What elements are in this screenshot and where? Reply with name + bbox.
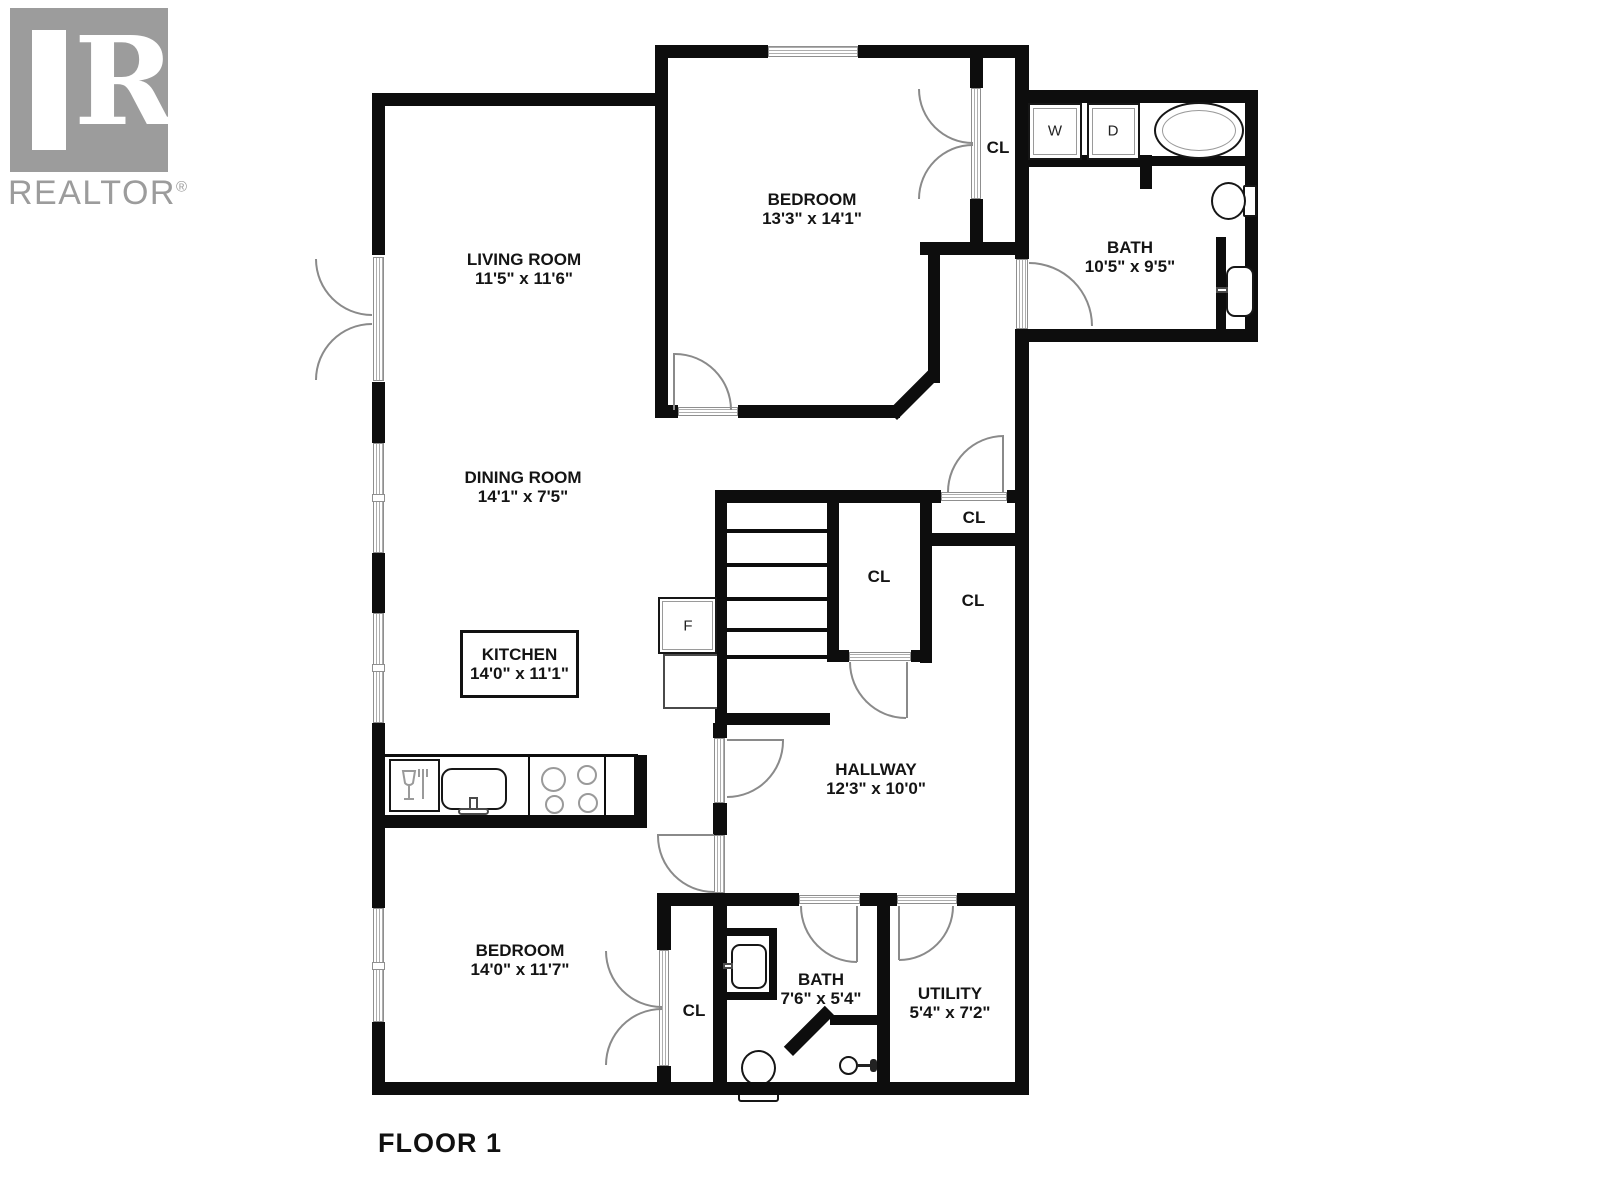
room-dims: 5'4" x 7'2" <box>910 1003 991 1022</box>
door-opening <box>714 738 725 803</box>
wall <box>655 45 768 58</box>
wall <box>372 1082 1029 1095</box>
door-arc <box>727 741 784 798</box>
fridge-label: F <box>683 618 692 635</box>
stair-tread <box>727 628 827 632</box>
window <box>373 613 384 667</box>
room-label-utility: UTILITY 5'4" x 7'2" <box>910 984 991 1022</box>
shower-head <box>839 1056 858 1075</box>
room-label-living-room: LIVING ROOM 11'5" x 11'6" <box>467 250 581 288</box>
window <box>373 669 384 723</box>
wall <box>920 533 1029 546</box>
wall <box>769 928 777 1000</box>
wall <box>372 382 385 443</box>
room-dims: 12'3" x 10'0" <box>826 779 926 798</box>
stair-tread <box>727 655 827 659</box>
wall <box>920 242 1029 255</box>
room-name: LIVING ROOM <box>467 250 581 269</box>
toilet-bowl <box>741 1050 776 1086</box>
washer-label: W <box>1048 123 1062 140</box>
wall <box>713 905 727 1095</box>
wall <box>634 755 647 828</box>
room-name: BATH <box>781 970 862 989</box>
closet-label: CL <box>987 138 1010 158</box>
wall <box>1140 155 1152 189</box>
wall <box>920 490 941 503</box>
door-arc <box>657 836 714 893</box>
wall <box>372 553 385 613</box>
room-name: BEDROOM <box>471 941 570 960</box>
window-sill <box>372 664 385 672</box>
wall <box>655 45 668 418</box>
door-opening <box>941 492 1007 501</box>
door-arc <box>918 144 973 199</box>
room-dims: 7'6" x 5'4" <box>781 989 862 1008</box>
room-dims: 11'5" x 11'6" <box>467 269 581 288</box>
door-opening <box>849 652 911 661</box>
room-name: DINING ROOM <box>464 468 581 487</box>
realtor-wordmark: REALTOR <box>8 174 176 212</box>
door-leaf <box>906 662 908 718</box>
shower-spray <box>870 1059 877 1072</box>
wall <box>827 502 839 662</box>
wall <box>372 93 655 106</box>
wall <box>727 992 777 1000</box>
room-name: BATH <box>1085 238 1175 257</box>
realtor-logo-text: REALTOR® <box>8 174 189 213</box>
floor-plan-canvas: R REALTOR® <box>0 0 1600 1200</box>
room-label-dining-room: DINING ROOM 14'1" x 7'5" <box>464 468 581 506</box>
wall <box>372 815 637 828</box>
room-name: KITCHEN <box>482 645 558 664</box>
door-arc <box>315 323 372 380</box>
sink <box>731 944 767 989</box>
counter-divider <box>604 757 606 817</box>
door-arc <box>947 435 1004 492</box>
window <box>373 967 384 1022</box>
stove-burner <box>545 795 564 814</box>
wall <box>830 1015 877 1025</box>
wall <box>657 905 671 950</box>
door-opening <box>714 835 725 893</box>
door-arc <box>605 951 662 1008</box>
realtor-logo-bar <box>32 30 66 150</box>
wall <box>713 803 727 835</box>
door-opening <box>373 257 384 381</box>
realtor-logo-square: R <box>10 8 168 172</box>
dryer-label: D <box>1108 123 1119 140</box>
room-label-bath-bottom: BATH 7'6" x 5'4" <box>781 970 862 1008</box>
dishwasher-icon <box>391 761 438 810</box>
stair-tread <box>727 563 827 567</box>
wall <box>920 502 932 663</box>
wall <box>784 1006 834 1056</box>
wall <box>957 893 1029 906</box>
stove-burner <box>541 767 566 792</box>
wall <box>1015 329 1029 1095</box>
faucet <box>1216 287 1228 293</box>
door-opening <box>1016 259 1028 329</box>
wall <box>877 905 890 1095</box>
wall <box>970 58 983 88</box>
door-opening <box>799 895 860 904</box>
window <box>373 443 384 497</box>
door-opening <box>897 895 957 904</box>
wall <box>928 250 940 383</box>
room-label-bedroom-top: BEDROOM 13'3" x 14'1" <box>762 190 862 228</box>
counter-edge <box>385 754 638 757</box>
door-arc <box>918 89 973 144</box>
room-dims: 14'0" x 11'7" <box>471 960 570 979</box>
bathtub-inner <box>1162 110 1236 151</box>
door-arc <box>605 1008 662 1065</box>
room-dims: 14'0" x 11'1" <box>470 664 569 683</box>
wall <box>713 723 727 738</box>
stove-burner <box>578 793 598 813</box>
bathtub <box>1154 102 1244 159</box>
wall <box>715 713 830 725</box>
faucet <box>723 963 733 969</box>
room-name: UTILITY <box>910 984 991 1003</box>
counter <box>663 654 717 709</box>
closet-label: CL <box>963 508 986 528</box>
window-sill <box>372 494 385 502</box>
wall <box>827 650 849 662</box>
room-label-bedroom-bottom: BEDROOM 14'0" x 11'7" <box>471 941 570 979</box>
room-label-hallway: HALLWAY 12'3" x 10'0" <box>826 760 926 798</box>
wall <box>1015 45 1029 259</box>
dishwasher <box>389 759 440 812</box>
window-sill <box>372 962 385 970</box>
wall <box>970 199 983 242</box>
floor-label: FLOOR 1 <box>378 1128 502 1159</box>
stove-burner <box>577 765 597 785</box>
room-dims: 14'1" x 7'5" <box>464 487 581 506</box>
wall <box>372 93 385 255</box>
kitchen-faucet-base <box>458 808 489 815</box>
door-arc <box>315 259 372 316</box>
stair-tread <box>727 529 827 533</box>
realtor-logo-r: R <box>74 16 175 146</box>
closet-label: CL <box>962 591 985 611</box>
stair-tread <box>727 597 827 601</box>
room-name: HALLWAY <box>826 760 926 779</box>
wall <box>715 490 932 503</box>
window <box>373 908 384 965</box>
room-label-bath-top: BATH 10'5" x 9'5" <box>1085 238 1175 276</box>
window <box>373 499 384 553</box>
wall <box>657 893 799 906</box>
door-arc <box>675 353 732 410</box>
door-arc <box>1029 262 1093 326</box>
wall <box>1007 490 1029 503</box>
wall <box>738 405 900 418</box>
closet-label: CL <box>683 1001 706 1021</box>
wall <box>1216 237 1226 331</box>
closet-label: CL <box>868 567 891 587</box>
toilet-bowl <box>1211 182 1246 220</box>
door-arc <box>849 662 906 719</box>
room-dims: 13'3" x 14'1" <box>762 209 862 228</box>
window <box>768 46 858 57</box>
room-label-kitchen: KITCHEN 14'0" x 11'1" <box>460 630 579 698</box>
counter-divider <box>528 757 530 817</box>
door-arc <box>899 906 954 961</box>
registered-mark: ® <box>176 179 189 196</box>
door-arc <box>800 906 857 963</box>
wall <box>1018 90 1258 103</box>
wall <box>858 45 1018 58</box>
sink <box>1226 266 1254 317</box>
room-name: BEDROOM <box>762 190 862 209</box>
room-dims: 10'5" x 9'5" <box>1085 257 1175 276</box>
